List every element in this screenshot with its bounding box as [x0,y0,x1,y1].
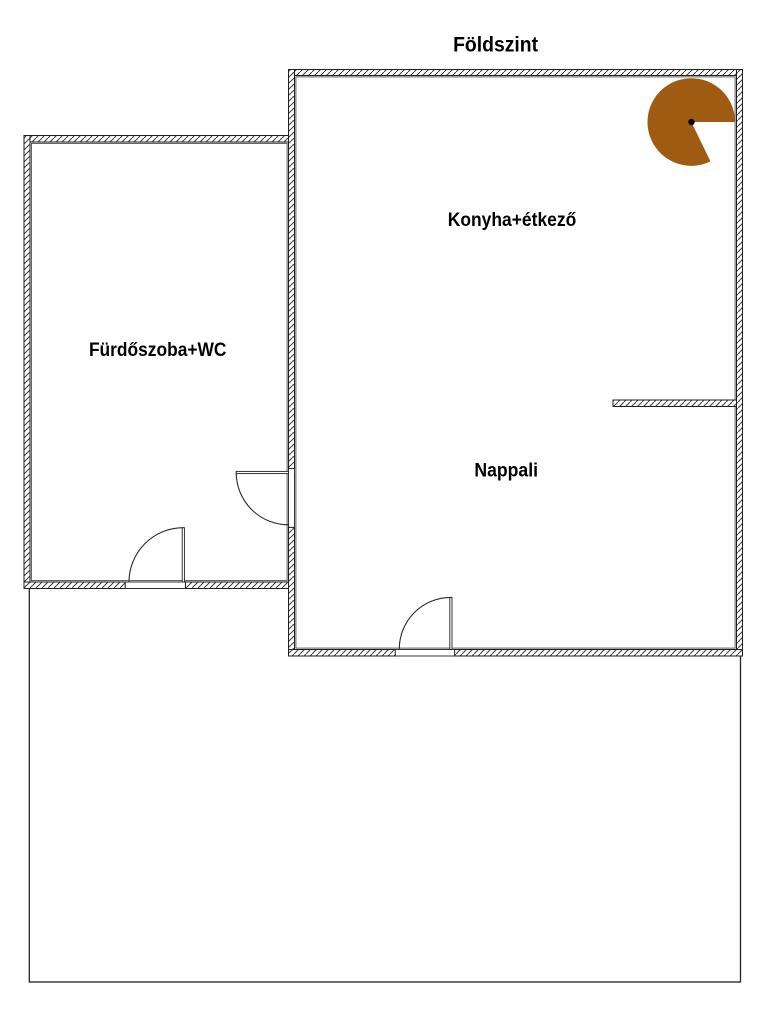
svg-text:Fürdőszoba+WC: Fürdőszoba+WC [89,339,227,361]
svg-text:Nappali: Nappali [474,460,538,482]
svg-text:Földszint: Földszint [453,31,538,56]
svg-text:Konyha+étkező: Konyha+étkező [448,209,577,231]
